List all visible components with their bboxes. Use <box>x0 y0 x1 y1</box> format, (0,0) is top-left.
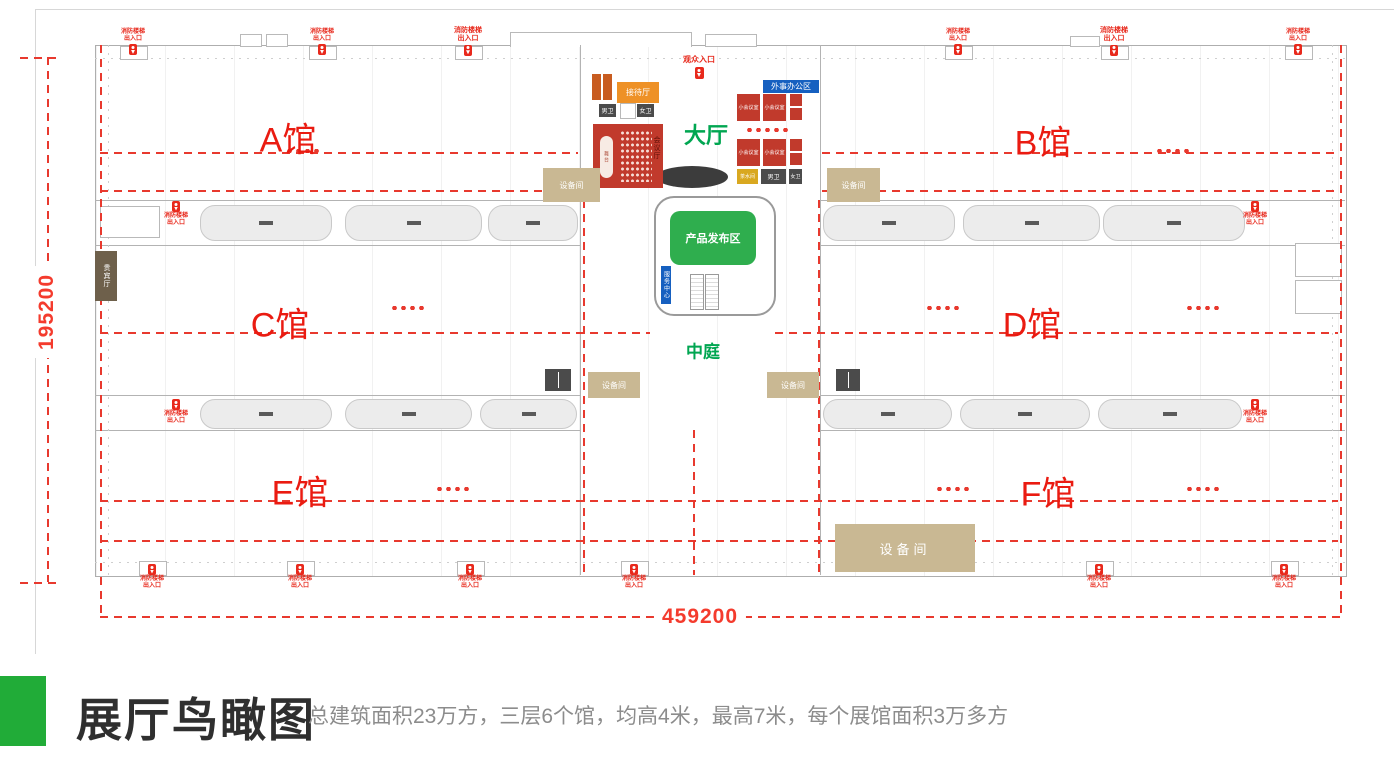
grid-line <box>583 200 585 575</box>
hall-label-a: A馆 <box>260 113 317 162</box>
side-room <box>1295 280 1342 314</box>
fire-exit-icon <box>1280 564 1288 575</box>
equipment-label: 设备间 <box>602 380 626 391</box>
fire-exit-label: 出入口 <box>313 36 331 42</box>
fire-exit-icon <box>1251 201 1259 212</box>
fire-exit-icon <box>1294 44 1302 55</box>
meeting-room-small <box>790 153 802 165</box>
fire-exit-icon <box>172 399 180 410</box>
hall-label-e: E馆 <box>272 466 329 515</box>
fire-exit-label: 出入口 <box>1275 583 1293 589</box>
building-top-notch <box>510 32 692 47</box>
hall-label-b: B馆 <box>1015 116 1072 165</box>
escalator <box>690 274 704 310</box>
red-dots <box>925 306 961 310</box>
grid-line <box>100 45 102 617</box>
fire-exit-label: 消防楼梯 <box>1243 411 1267 417</box>
visitor-entrance-label: 观众入口 <box>683 55 715 64</box>
fire-exit-label: 出入口 <box>167 220 185 226</box>
fire-exit-label: 出入口 <box>625 583 643 589</box>
hall-label-f: F馆 <box>1021 467 1076 516</box>
meeting-room-label: 小会议室 <box>738 104 758 111</box>
grid-line <box>1340 45 1342 617</box>
fire-exit-marker: 消防楼梯 出入口 <box>144 398 208 425</box>
service-desk: 服务中心 <box>661 266 671 304</box>
page-subtitle: 总建筑面积23万方，三层6个馆，均高4米，最高7米，每个展馆面积3万多方 <box>308 700 1008 730</box>
elevator-divider <box>558 372 559 388</box>
info-desk <box>656 166 728 188</box>
entrance-icon <box>695 67 704 79</box>
small-room <box>592 74 601 100</box>
fire-exit-label: 出入口 <box>124 36 142 42</box>
fire-exit-marker: 消防楼梯 出入口 <box>290 29 354 56</box>
fire-exit-marker: 消防楼梯 出入口 <box>120 563 184 590</box>
fire-exit-icon <box>318 44 326 55</box>
meeting-room-small <box>790 139 802 151</box>
wall-h <box>820 395 1345 396</box>
skylight-void <box>1098 399 1242 429</box>
tea-room-label: 茶水间 <box>740 173 755 180</box>
equipment-room: 设备间 <box>827 168 880 202</box>
fire-exit-label: 消防楼梯 <box>1087 576 1111 582</box>
meeting-room: 小会议室 <box>763 94 786 121</box>
dim-height-label: 195200 <box>35 266 59 358</box>
grid-line <box>693 430 695 575</box>
service-desk-label: 服务中心 <box>662 271 671 299</box>
hall-label-c: C馆 <box>251 298 310 347</box>
dim-tick <box>20 57 62 59</box>
dim-width-label: 459200 <box>654 605 746 629</box>
fire-exit-marker: 消防楼梯 出入口 <box>1082 27 1146 57</box>
fire-exit-label: 出入口 <box>461 583 479 589</box>
grid-line <box>100 152 578 154</box>
toilet-female: 女卫 <box>789 169 802 184</box>
skylight-void <box>345 399 472 429</box>
fire-exit-label: 消防楼梯 <box>164 213 188 219</box>
wall-center-right <box>820 45 821 575</box>
wall-center-left <box>580 45 581 575</box>
fire-exit-icon <box>630 564 638 575</box>
conference-label-text: 会议厅 <box>653 136 660 160</box>
conference-seats <box>620 130 652 182</box>
skylight-void <box>200 205 332 241</box>
meeting-room: 小会议室 <box>737 139 760 166</box>
toilet-male: 男卫 <box>599 104 616 117</box>
fire-exit-label: 消防楼梯 <box>458 576 482 582</box>
wall-h <box>95 395 580 396</box>
fire-exit-label: 消防楼梯 <box>310 29 334 35</box>
fire-exit-marker: 消防楼梯 出入口 <box>438 563 502 590</box>
reception-label: 接待厅 <box>626 87 650 98</box>
equipment-label: 设备间 <box>781 380 805 391</box>
meeting-room-label: 小会议室 <box>738 149 758 156</box>
fire-exit-icon <box>954 44 962 55</box>
vip-lounge-label: 贵宾厅 <box>101 264 111 288</box>
fire-exit-label: 出入口 <box>1246 418 1264 424</box>
title-accent-block <box>0 676 46 746</box>
atrium-label: 中庭 <box>686 338 720 363</box>
roof-box <box>266 34 288 47</box>
fire-exit-marker: 消防楼梯 出入口 <box>1252 563 1316 590</box>
skylight-void <box>963 205 1100 241</box>
meeting-room-label: 小会议室 <box>764 104 784 111</box>
fire-exit-label: 消防楼梯 <box>946 29 970 35</box>
fire-exit-label: 出入口 <box>167 418 185 424</box>
reception-hall: 接待厅 <box>617 82 659 103</box>
fire-exit-label: 消防楼梯 <box>121 29 145 35</box>
fire-exit-icon <box>148 564 156 575</box>
equipment-label: 设备间 <box>560 180 584 191</box>
fire-exit-icon <box>466 564 474 575</box>
fire-exit-marker: 消防楼梯 出入口 <box>926 29 990 56</box>
meeting-room-label: 小会议室 <box>764 149 784 156</box>
fire-exit-icon <box>296 564 304 575</box>
side-room <box>1295 243 1342 277</box>
fire-exit-marker: 消防楼梯 出入口 <box>1266 29 1330 56</box>
toilet-female: 女卫 <box>637 104 654 117</box>
meeting-room: 小会议室 <box>763 139 786 166</box>
fire-exit-icon <box>1095 564 1103 575</box>
fire-exit-label: 消防楼梯 <box>140 576 164 582</box>
equipment-room-large: 设备间 <box>835 524 975 572</box>
fire-exit-label: 出入口 <box>1289 36 1307 42</box>
fire-exit-label: 消防楼梯 <box>622 576 646 582</box>
skylight-void <box>960 399 1090 429</box>
fire-exit-label: 消防楼梯 <box>288 576 312 582</box>
red-dots <box>1185 306 1221 310</box>
meeting-room: 小会议室 <box>737 94 760 121</box>
fire-exit-label: 消防楼梯 <box>1243 213 1267 219</box>
fire-exit-marker: 消防楼梯 出入口 <box>101 29 165 56</box>
fire-exit-icon <box>1251 399 1259 410</box>
visitor-entrance: 观众入口 <box>683 54 715 79</box>
fire-exit-label: 出入口 <box>1104 35 1125 42</box>
roof-box <box>240 34 262 47</box>
office-zone: 外事办公区 <box>763 80 819 93</box>
dim-tick <box>20 582 62 584</box>
fire-exit-icon <box>129 44 137 55</box>
product-launch-zone: 产品发布区 <box>670 211 756 265</box>
product-launch-label: 产品发布区 <box>686 230 741 246</box>
exhibition-overview-page: 195200 459200 A馆 B馆 C馆 D馆 E馆 F馆 大厅 <box>0 0 1394 757</box>
fire-exit-label: 消防楼梯 <box>454 27 482 34</box>
wall-h <box>820 430 1345 431</box>
small-room <box>603 74 612 100</box>
elevator-bank <box>836 369 860 391</box>
wall-h <box>95 245 580 246</box>
toilet-male-label: 男卫 <box>767 172 779 181</box>
hall-label-d: D馆 <box>1003 298 1062 347</box>
red-dots <box>935 487 971 491</box>
floor-plan: 195200 459200 A馆 B馆 C馆 D馆 E馆 F馆 大厅 <box>0 0 1394 660</box>
equipment-room: 设备间 <box>588 372 640 398</box>
fire-exit-label: 出入口 <box>458 35 479 42</box>
red-dots <box>745 128 790 132</box>
fire-exit-marker: 消防楼梯 出入口 <box>436 27 500 57</box>
fire-exit-icon <box>172 201 180 212</box>
fire-exit-marker: 消防楼梯 出入口 <box>602 563 666 590</box>
elevator-divider <box>848 372 849 388</box>
skylight-void <box>345 205 482 241</box>
frame-line-top <box>35 9 1394 10</box>
grid-line <box>100 190 578 192</box>
red-dots <box>1185 487 1221 491</box>
tea-room: 茶水间 <box>737 169 758 184</box>
fire-exit-label: 消防楼梯 <box>1286 29 1310 35</box>
equipment-room: 设备间 <box>543 168 600 202</box>
elevator-lobby <box>620 103 636 119</box>
column-line <box>95 58 1345 59</box>
red-dots <box>435 487 471 491</box>
toilet-female-label: 女卫 <box>639 106 651 115</box>
meeting-room-small <box>790 94 802 106</box>
wall-h <box>95 430 580 431</box>
escalator <box>705 274 719 310</box>
column-line <box>108 45 109 575</box>
fire-exit-icon <box>1110 45 1118 56</box>
fire-exit-label: 消防楼梯 <box>164 411 188 417</box>
main-hall-label: 大厅 <box>684 118 728 150</box>
grid-line <box>822 152 1338 154</box>
skylight-void <box>480 399 577 429</box>
office-zone-label: 外事办公区 <box>771 81 811 92</box>
fire-exit-label: 消防楼梯 <box>1100 27 1128 34</box>
meeting-room-small <box>790 108 802 120</box>
skylight-void <box>823 399 952 429</box>
wall-h <box>820 245 1345 246</box>
toilet-male: 男卫 <box>761 169 786 184</box>
fire-exit-label: 出入口 <box>949 36 967 42</box>
skylight-void <box>488 205 578 241</box>
red-dots <box>1155 149 1191 153</box>
equipment-label: 设备间 <box>879 539 930 558</box>
page-title: 展厅鸟瞰图 <box>76 684 316 750</box>
vip-lounge: 贵宾厅 <box>95 251 117 301</box>
fire-exit-label: 出入口 <box>291 583 309 589</box>
conference-label: 会议厅 <box>651 136 661 160</box>
equipment-room: 设备间 <box>767 372 819 398</box>
grid-line <box>100 332 650 334</box>
elevator-bank <box>545 369 571 391</box>
skylight-void <box>823 205 955 241</box>
red-dots <box>390 306 426 310</box>
stage: 舞台 <box>600 136 613 178</box>
fire-exit-label: 出入口 <box>143 583 161 589</box>
fire-exit-label: 消防楼梯 <box>1272 576 1296 582</box>
skylight-void <box>200 399 332 429</box>
fire-exit-marker: 消防楼梯 出入口 <box>1223 398 1287 425</box>
toilet-male-label: 男卫 <box>601 106 613 115</box>
fire-exit-marker: 消防楼梯 出入口 <box>268 563 332 590</box>
roof-box <box>705 34 757 47</box>
fire-exit-marker: 消防楼梯 出入口 <box>144 200 208 227</box>
fire-exit-marker: 消防楼梯 出入口 <box>1067 563 1131 590</box>
grid-line <box>100 540 1338 542</box>
fire-exit-label: 出入口 <box>1246 220 1264 226</box>
toilet-female-label: 女卫 <box>790 173 800 180</box>
grid-line <box>822 190 1338 192</box>
equipment-label: 设备间 <box>842 180 866 191</box>
fire-exit-label: 出入口 <box>1090 583 1108 589</box>
stage-label: 舞台 <box>603 151 610 163</box>
fire-exit-marker: 消防楼梯 出入口 <box>1223 200 1287 227</box>
fire-exit-icon <box>464 45 472 56</box>
